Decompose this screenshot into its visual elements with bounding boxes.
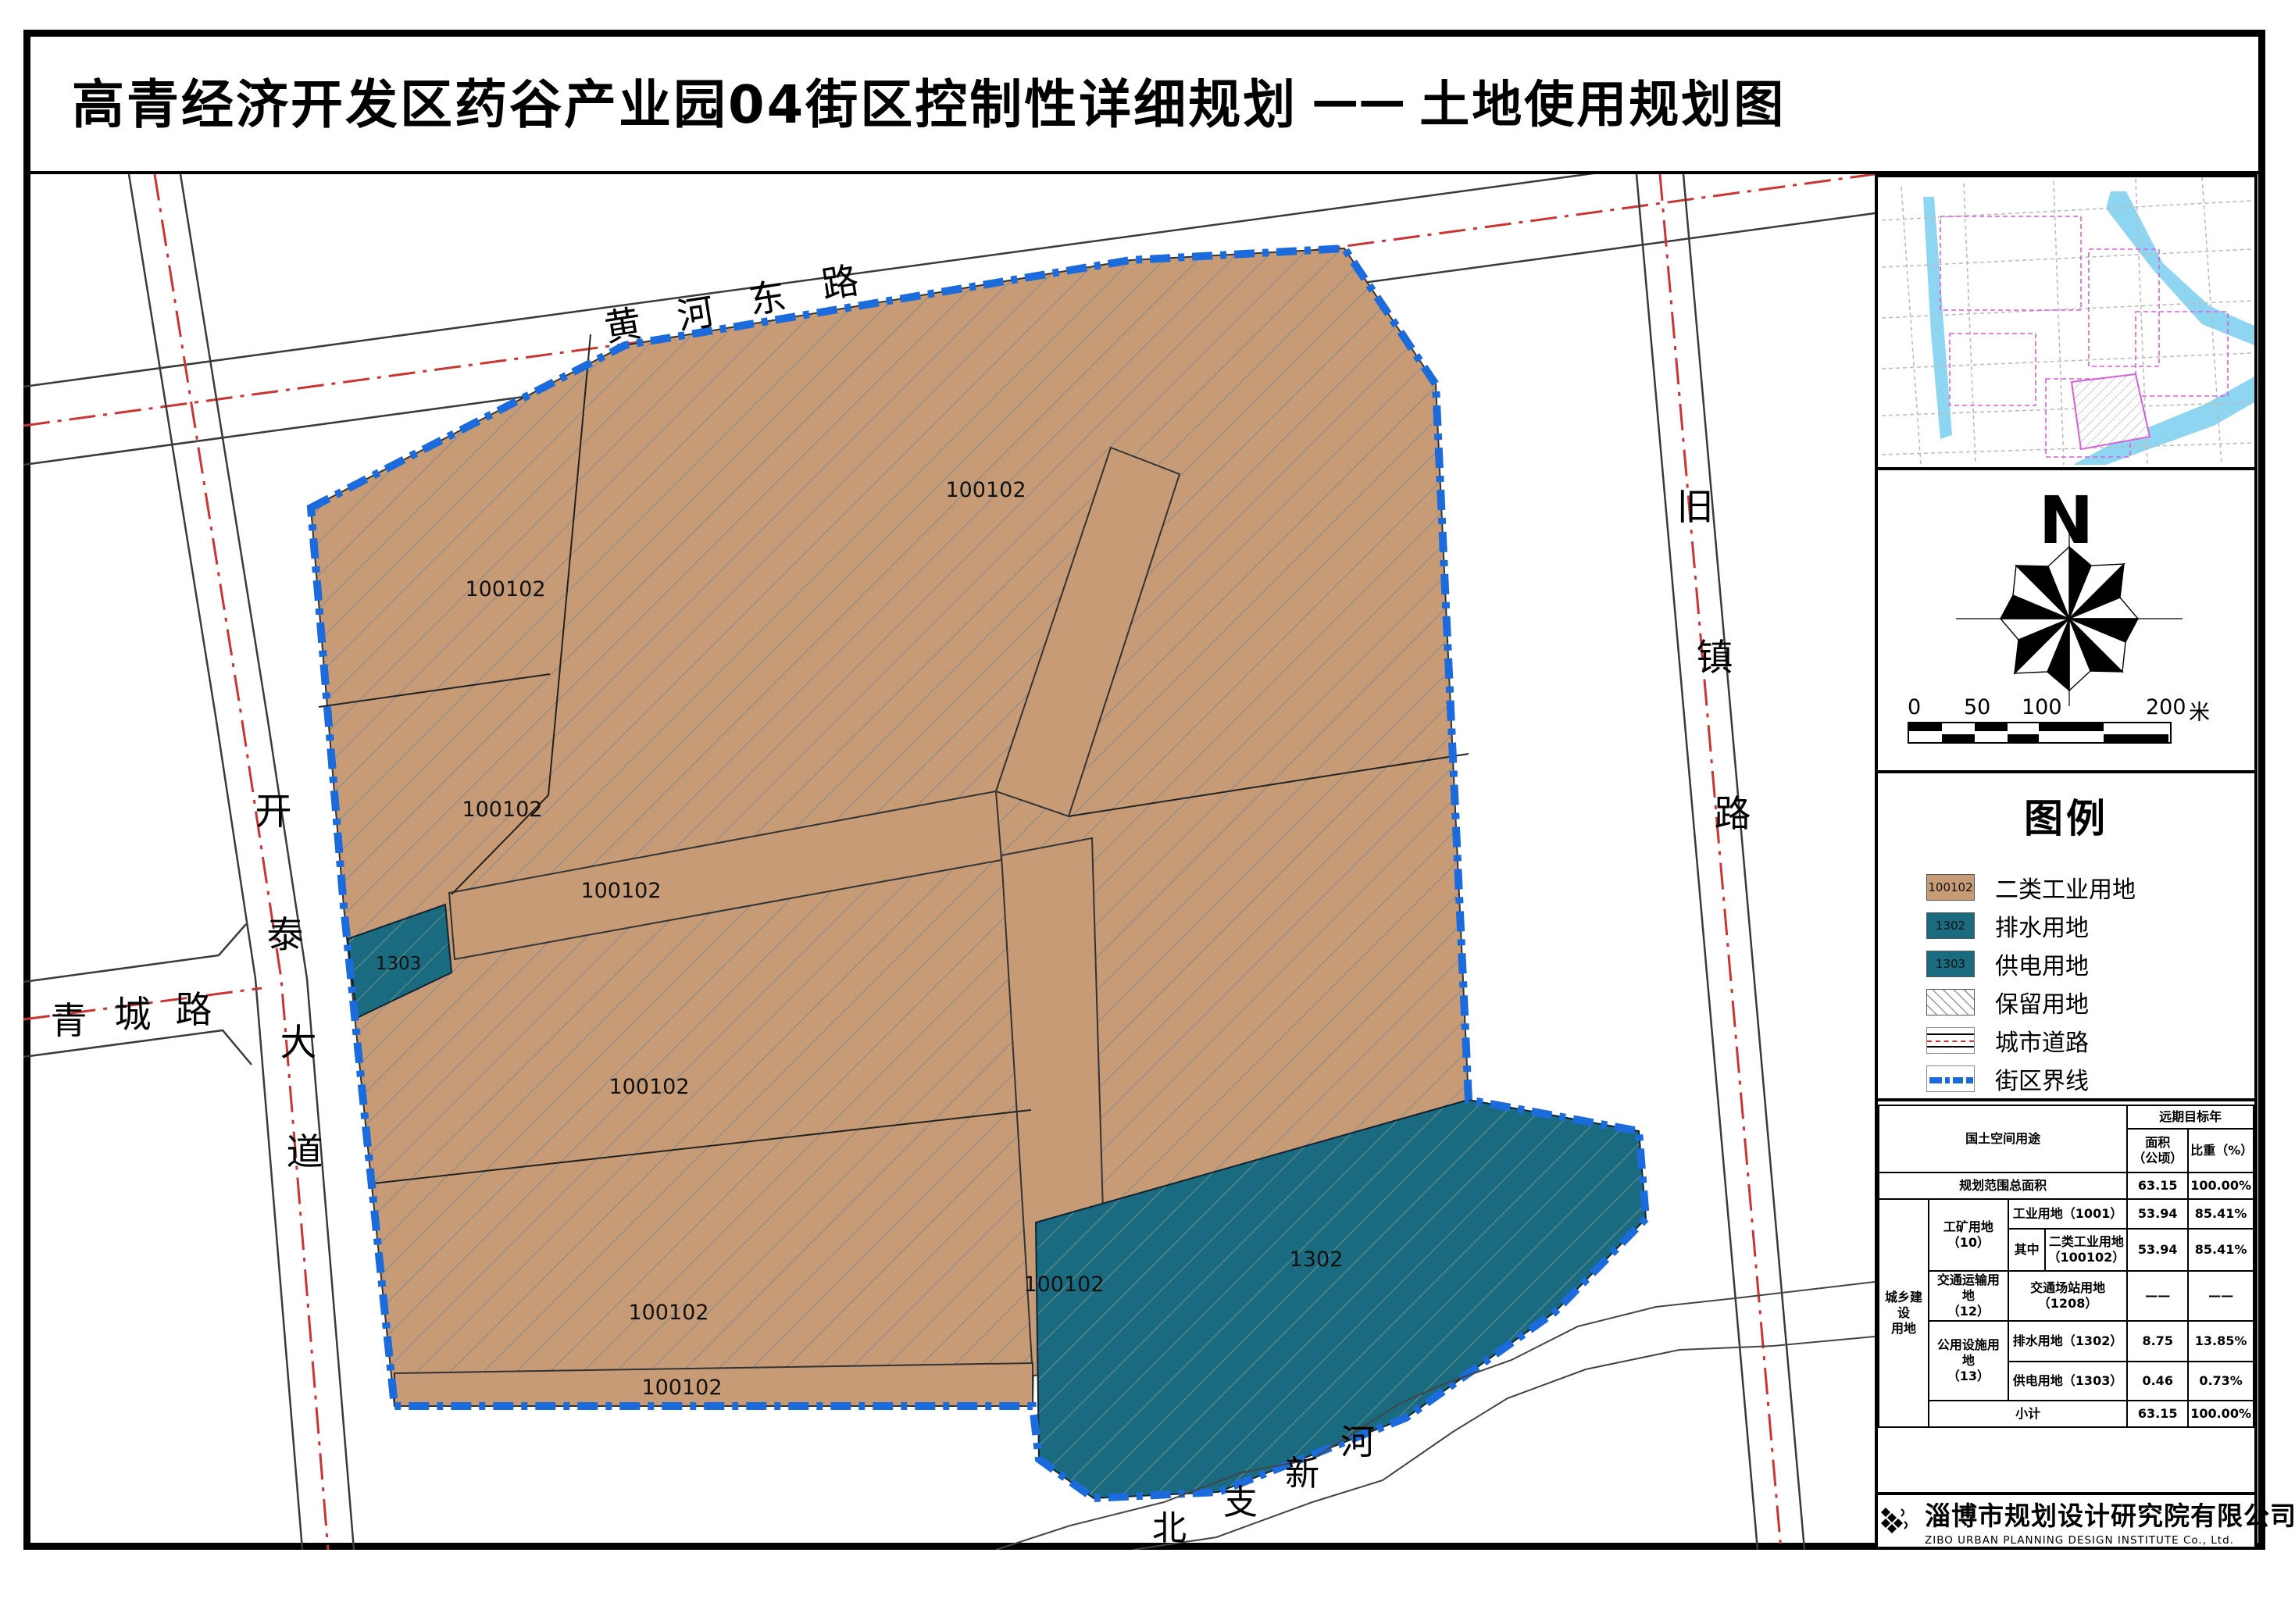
land-use-map-svg: 100102 100102 100102 100102 100102 10010…	[23, 174, 1875, 1550]
svg-text:河: 河	[674, 291, 717, 339]
svg-text:支: 支	[1223, 1483, 1258, 1522]
legend-item-power: 1303 供电用地	[1926, 950, 2254, 978]
svg-text:路: 路	[819, 259, 862, 308]
svg-text:100102: 100102	[465, 577, 545, 601]
scale-tick-50: 50	[1964, 695, 1990, 719]
legend-title: 图例	[1878, 787, 2254, 844]
title-dash: ——	[1312, 73, 1405, 128]
scale-tick-0: 0	[1908, 695, 1921, 719]
svg-text:1303: 1303	[376, 954, 422, 974]
legend-panel: 图例 100102 二类工业用地 1302 排水用地 1303 供电用地 保留用…	[1875, 770, 2258, 1101]
table-row: 公用设施用地 （13） 排水用地（1302） 8.75 13.85%	[1879, 1321, 2254, 1362]
svg-text:黄: 黄	[601, 302, 644, 351]
table-panel: 国土空间用途 远期目标年 面积 （公顷） 比重（%） 规划范围总面积 63.15…	[1875, 1098, 2258, 1495]
svg-text:100102: 100102	[609, 1075, 689, 1099]
legend-swatch-road	[1926, 1027, 1975, 1054]
legend-swatch-drainage: 1302	[1926, 912, 1975, 939]
scale-tick-200: 200	[2146, 695, 2186, 719]
title-band: 高青经济开发区药谷产业园04街区控制性详细规划 —— 土地使用规划图	[23, 30, 2265, 174]
svg-text:路: 路	[176, 989, 212, 1032]
company-name-cn: 淄博市规划设计研究院有限公司	[1925, 1495, 2295, 1533]
land-use-map: 100102 100102 100102 100102 100102 10010…	[23, 174, 1875, 1550]
svg-text:镇: 镇	[1697, 637, 1733, 680]
svg-text:大: 大	[280, 1022, 317, 1065]
company-text: 淄博市规划设计研究院有限公司 ZIBO URBAN PLANNING DESIG…	[1925, 1495, 2295, 1547]
road-kaitai-centerline	[155, 174, 328, 1550]
legend-swatch-power: 1303	[1926, 951, 1975, 977]
company-name-en: ZIBO URBAN PLANNING DESIGN INSTITUTE Co.…	[1925, 1534, 2295, 1547]
legend-item-road: 城市道路	[1926, 1026, 2254, 1055]
svg-text:新: 新	[1285, 1454, 1319, 1494]
scale-bar-blocks	[1908, 722, 2172, 744]
svg-text:开: 开	[255, 791, 292, 833]
scale-tick-labels: 0 50 100 200 米	[1908, 695, 2220, 719]
svg-text:河: 河	[1340, 1422, 1375, 1462]
svg-text:100102: 100102	[945, 478, 1026, 502]
svg-text:100102: 100102	[580, 879, 661, 903]
legend-item-boundary: 街区界线	[1926, 1065, 2254, 1093]
th-target-year: 远期目标年	[2127, 1105, 2254, 1129]
scale-unit: 米	[2189, 695, 2210, 726]
overview-minimap	[1878, 177, 2254, 467]
th-use: 国土空间用途	[1879, 1105, 2127, 1172]
svg-text:青: 青	[51, 1000, 87, 1043]
svg-text:旧: 旧	[1677, 486, 1714, 529]
svg-text:100102: 100102	[628, 1301, 708, 1325]
svg-text:100102: 100102	[1023, 1272, 1104, 1297]
compass-rose	[1952, 529, 2186, 708]
cell-group: 城乡建设 用地	[1879, 1199, 1929, 1427]
svg-text:100102: 100102	[462, 798, 542, 822]
scale-bar: 0 50 100 200 米	[1908, 695, 2220, 744]
legend-item-industrial: 100102 二类工业用地	[1926, 873, 2254, 901]
minimap-current-block	[2072, 374, 2150, 449]
table-row: 规划范围总面积 63.15 100.00%	[1879, 1172, 2254, 1199]
svg-text:北: 北	[1152, 1508, 1187, 1548]
svg-text:泰: 泰	[267, 914, 304, 957]
company-block: 淄博市规划设计研究院有限公司 ZIBO URBAN PLANNING DESIG…	[1878, 1495, 2295, 1547]
svg-text:路: 路	[1715, 793, 1751, 836]
legend-swatch-reserved	[1926, 989, 1975, 1015]
road-jiuzhen	[1636, 174, 1804, 1550]
svg-text:东: 东	[746, 275, 789, 323]
th-area: 面积 （公顷）	[2127, 1129, 2188, 1172]
svg-text:1302: 1302	[1290, 1247, 1344, 1272]
table-row: 小计 63.15 100.00%	[1879, 1401, 2254, 1427]
legend-swatch-boundary	[1926, 1065, 1975, 1092]
page-subtitle: 土地使用规划图	[1419, 65, 1786, 137]
svg-text:道: 道	[287, 1131, 323, 1174]
svg-text:100102: 100102	[641, 1376, 722, 1400]
legend-item-drainage: 1302 排水用地	[1926, 912, 2254, 940]
compass-panel: N 0 50 100 200 米	[1875, 467, 2258, 773]
svg-text:城: 城	[115, 994, 152, 1037]
legend-swatch-industrial: 100102	[1926, 874, 1975, 901]
footer-panel: 淄博市规划设计研究院有限公司 ZIBO URBAN PLANNING DESIG…	[1875, 1492, 2258, 1550]
table-row: 城乡建设 用地 工矿用地 （10） 工业用地（1001） 53.94 85.41…	[1879, 1199, 2254, 1229]
page-title: 高青经济开发区药谷产业园04街区控制性详细规划	[72, 62, 1297, 138]
road-jiuzhen-centerline	[1660, 174, 1781, 1550]
legend-item-reserved: 保留用地	[1926, 988, 2254, 1016]
table-row: 交通运输用地 （12） 交通场站用地（1208） —— ——	[1879, 1271, 2254, 1321]
legend-items: 100102 二类工业用地 1302 排水用地 1303 供电用地 保留用地 城…	[1878, 873, 2254, 1093]
th-ratio: 比重（%）	[2188, 1129, 2254, 1172]
scale-tick-100: 100	[2022, 695, 2062, 719]
company-logo-icon	[1878, 1503, 1914, 1539]
land-use-table: 国土空间用途 远期目标年 面积 （公顷） 比重（%） 规划范围总面积 63.15…	[1878, 1105, 2254, 1428]
overview-minimap-panel	[1875, 174, 2258, 470]
road-kaitai-avenue	[129, 174, 354, 1550]
